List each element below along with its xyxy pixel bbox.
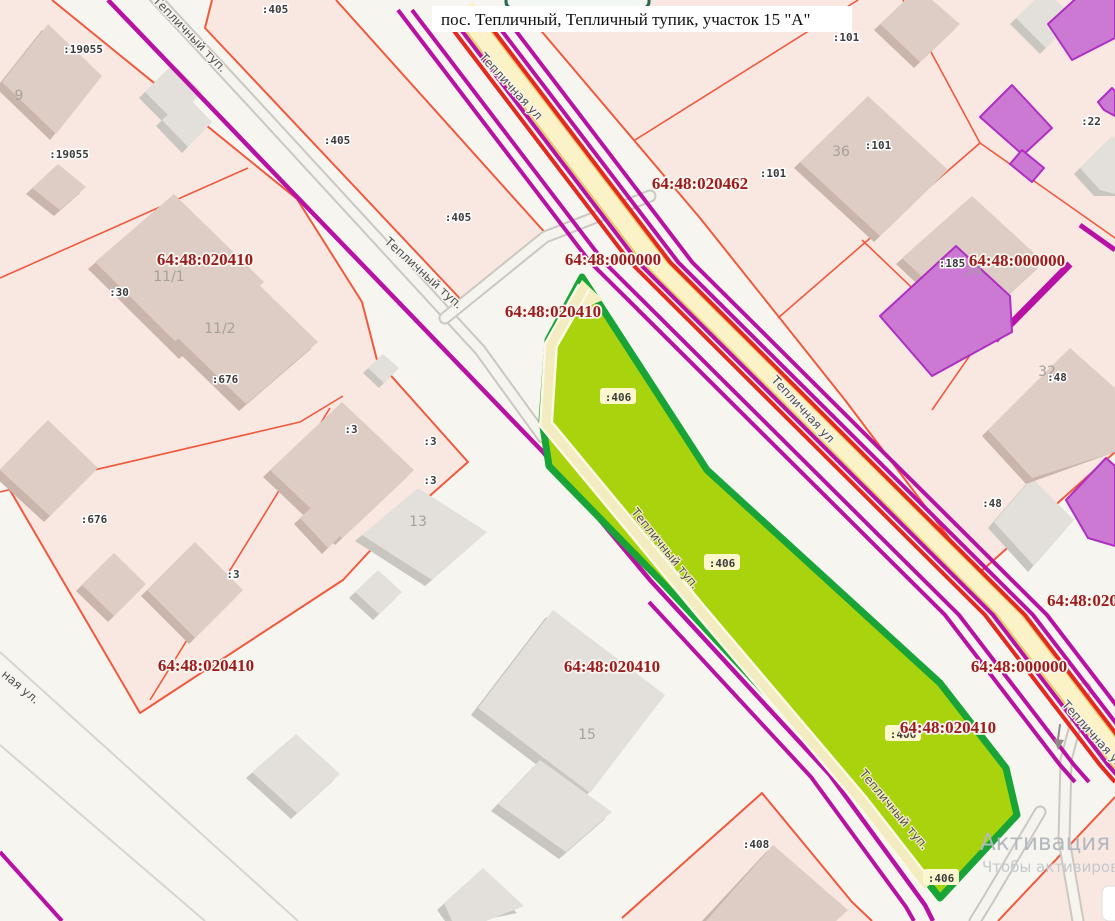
house-number: 13 bbox=[409, 514, 427, 530]
quarter-number: 64:48:000000 bbox=[565, 250, 661, 269]
parcel-number: :3 bbox=[423, 474, 436, 487]
quarter-number: 64:48:020410 bbox=[564, 657, 660, 676]
parcel-number: :406 bbox=[605, 391, 632, 404]
parcel-number: :676 bbox=[81, 513, 108, 526]
parcel-number: :30 bbox=[109, 286, 129, 299]
quarter-number: 64:48:000000 bbox=[969, 251, 1065, 270]
parcel-number: :405 bbox=[445, 211, 472, 224]
address-label: пос. Тепличный, Тепличный тупик, участок… bbox=[441, 10, 811, 29]
house-number: 9 bbox=[15, 88, 24, 104]
parcel-number: :22 bbox=[1081, 115, 1101, 128]
quarter-number: 64:48:020410 bbox=[158, 656, 254, 675]
map-canvas[interactable]: 9 11/1 11/2 13 15 36 34 32 :406 :406 :40… bbox=[0, 0, 1115, 921]
parcel-number: :408 bbox=[743, 838, 770, 851]
house-number: 11/2 bbox=[204, 321, 235, 337]
watermark-line2: Чтобы активироват bbox=[982, 858, 1115, 876]
quarter-number: 64:48:020410 bbox=[505, 302, 601, 321]
quarter-number: 64:48:020410 bbox=[157, 250, 253, 269]
watermark-line1: Активация Win bbox=[980, 830, 1115, 856]
parcel-number: :405 bbox=[324, 134, 351, 147]
parcel-number: :406 bbox=[709, 557, 736, 570]
parcel-number: :3 bbox=[226, 568, 239, 581]
quarter-number: 64:48:000000 bbox=[971, 657, 1067, 676]
parcel-number: :185 bbox=[939, 257, 966, 270]
parcel-number: :676 bbox=[212, 373, 239, 386]
parcel-number: :101 bbox=[833, 31, 860, 44]
parcel-number: :48 bbox=[1047, 371, 1067, 384]
parcel-number: :405 bbox=[262, 3, 289, 16]
quarter-number: 64:48:020462 bbox=[652, 174, 748, 193]
parcel-number: :19055 bbox=[49, 148, 89, 161]
parcel-number: :101 bbox=[760, 167, 787, 180]
parcel-number: :3 bbox=[423, 435, 436, 448]
quarter-number: 64:48:020 bbox=[1047, 591, 1115, 610]
parcel-number: :19055 bbox=[63, 43, 103, 56]
parcel-number: :406 bbox=[928, 872, 955, 885]
parcel-number: :48 bbox=[982, 497, 1002, 510]
quarter-number: 64:48:020410 bbox=[900, 718, 996, 737]
map-control-button[interactable] bbox=[1102, 886, 1115, 921]
windows-activation-watermark: Активация Win Чтобы активироват bbox=[980, 830, 1115, 876]
house-number: 15 bbox=[578, 727, 596, 743]
parcel-number: :101 bbox=[865, 139, 892, 152]
parcel-number: :3 bbox=[344, 423, 357, 436]
house-number: 11/1 bbox=[153, 269, 184, 285]
house-number: 36 bbox=[832, 144, 850, 160]
